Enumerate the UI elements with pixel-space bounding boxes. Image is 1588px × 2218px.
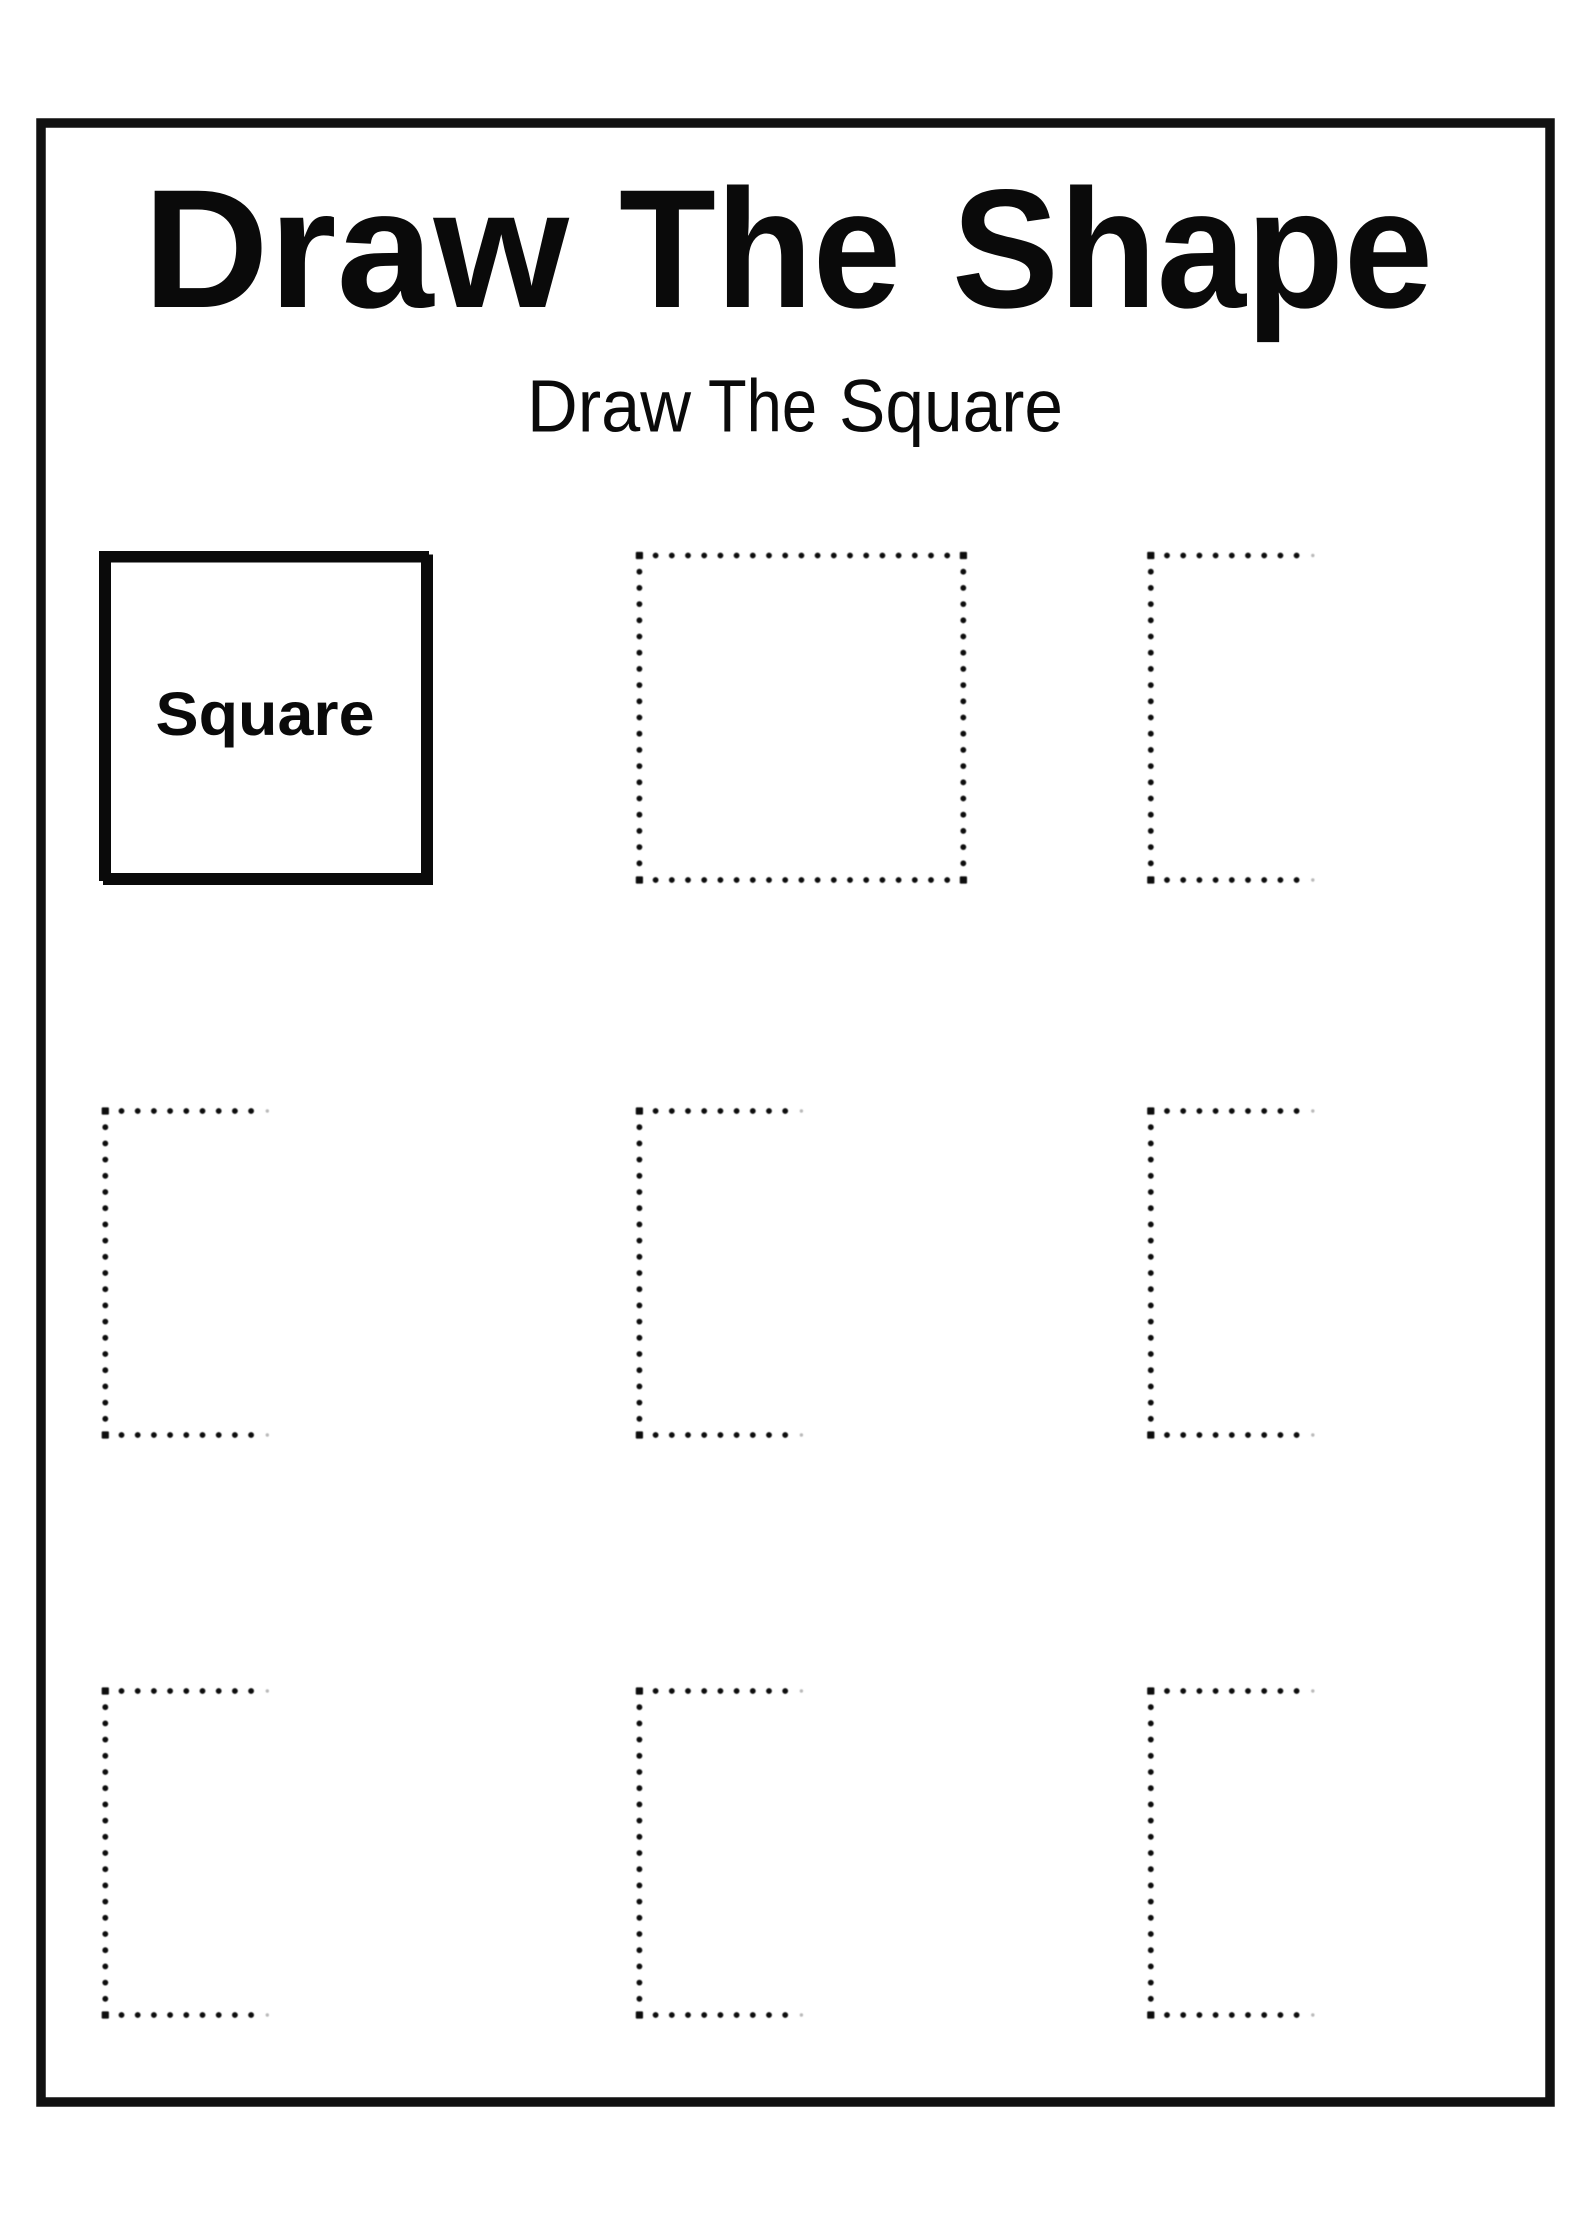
svg-text:Draw: Draw	[143, 154, 570, 343]
svg-text:Draw: Draw	[527, 365, 692, 448]
svg-text:Square: Square	[156, 680, 375, 749]
svg-text:The: The	[708, 365, 817, 448]
svg-text:Square: Square	[839, 365, 1063, 448]
svg-text:Shape: Shape	[952, 154, 1433, 343]
svg-text:The: The	[619, 154, 901, 343]
